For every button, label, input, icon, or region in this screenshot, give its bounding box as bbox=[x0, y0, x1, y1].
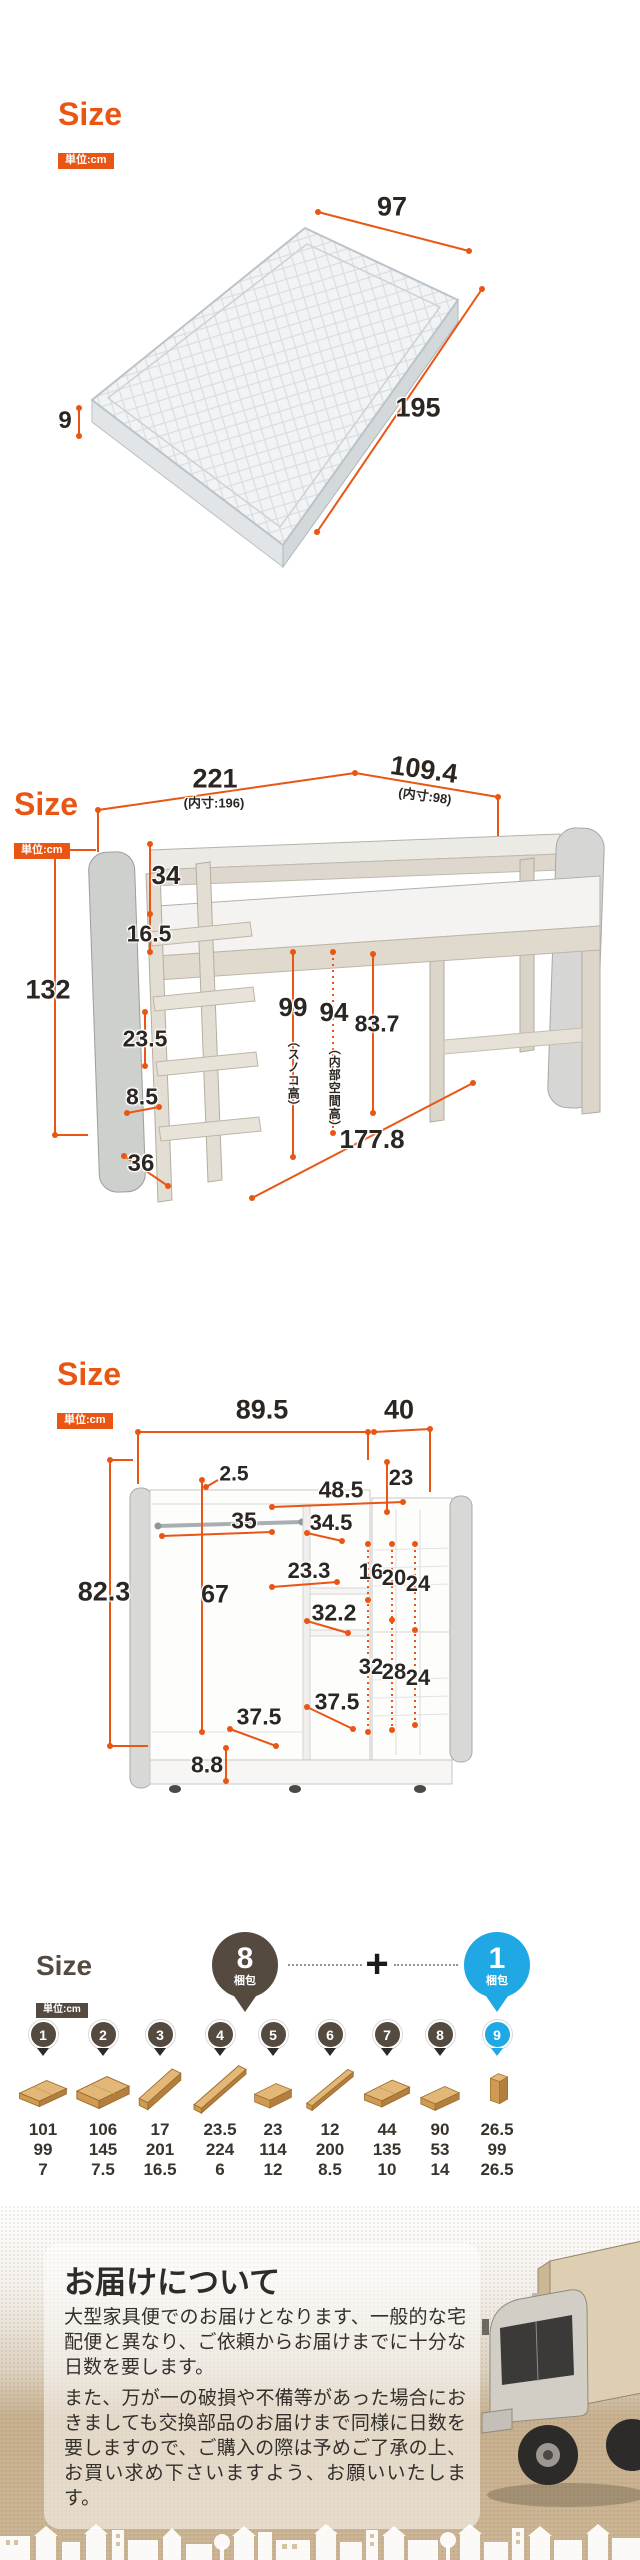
bed-width-dim: 221 bbox=[192, 766, 237, 793]
package-item-4: 4 23.52246 bbox=[191, 2020, 249, 2180]
package-item-1: 1 101997 bbox=[14, 2020, 72, 2180]
package-number-pin: 9 bbox=[483, 2020, 512, 2056]
package-item-5: 5 2311412 bbox=[244, 2020, 302, 2180]
wardrobe-slot-top1-dim: 16 bbox=[359, 1561, 383, 1583]
mattress-length-dim: 195 bbox=[395, 395, 440, 422]
wardrobe-upper-shelf-dim: 34.5 bbox=[310, 1512, 353, 1534]
package-number-pin: 8 bbox=[426, 2020, 455, 2056]
wardrobe-slot-bot3-dim: 24 bbox=[406, 1667, 430, 1689]
bed-inner-height-note: （内部空間高） bbox=[328, 1043, 341, 1134]
delivery-paragraph-2: また、万が一の破損や不備等があった場合におきましても交換部品のお届けまで同様に日… bbox=[64, 2386, 466, 2511]
delivery-body: 大型家具便でのお届けとなります、一般的な宅配便と異なり、ご依頼からお届けまでに十… bbox=[64, 2305, 466, 2517]
size-title: Size bbox=[36, 1952, 92, 1980]
package-item-3: 3 1720116.5 bbox=[131, 2020, 189, 2180]
mattress-thickness-dim: 9 bbox=[58, 409, 71, 433]
unit-badge: 単位:cm bbox=[58, 153, 114, 169]
size-title: Size bbox=[14, 788, 78, 820]
mattress-width-dim: 97 bbox=[377, 194, 407, 221]
wardrobe-side-width-dim: 40 bbox=[384, 1397, 414, 1424]
wardrobe-slot-top2-dim: 20 bbox=[382, 1567, 406, 1589]
bed-size-section: Size 単位:cm bbox=[0, 660, 640, 1240]
package-box-icon bbox=[358, 2060, 416, 2114]
bed-step-depth-dim: 8.5 bbox=[126, 1086, 158, 1109]
package-number-pin: 5 bbox=[259, 2020, 288, 2056]
bed-under-width-dim: 177.8 bbox=[339, 1126, 404, 1152]
package-item-2: 2 1061457.5 bbox=[74, 2020, 132, 2180]
bed-slat-height-note: （スノコ高） bbox=[287, 1035, 300, 1113]
wardrobe-left-inner-dim: 35 bbox=[231, 1510, 257, 1533]
package-item-7: 7 4413510 bbox=[358, 2020, 416, 2180]
package-item-6: 6 122008.5 bbox=[301, 2020, 359, 2180]
packing-section: Size 単位:cm 8 梱包 + 1 梱包 1 101997 bbox=[0, 1860, 640, 2205]
package-count-label: 梱包 bbox=[234, 1976, 256, 1987]
city-skyline-decoration bbox=[0, 2520, 640, 2560]
size-title: Size bbox=[58, 98, 122, 130]
mattress-size-header: Size 単位:cm bbox=[58, 98, 122, 169]
bed-slat-height-dim: 99 bbox=[279, 994, 308, 1020]
bed-size-header: Size 単位:cm bbox=[14, 788, 78, 859]
wardrobe-depth-right-dim: 37.5 bbox=[315, 1691, 360, 1714]
wardrobe-upper-inner-dim: 48.5 bbox=[319, 1479, 364, 1502]
wardrobe-slot-bot2-dim: 28 bbox=[382, 1661, 406, 1683]
package-box-icon bbox=[14, 2060, 72, 2114]
dotted-leader-left bbox=[288, 1964, 362, 1966]
package-item-8: 8 905314 bbox=[411, 2020, 469, 2180]
plus-sign: + bbox=[365, 1944, 388, 1984]
unit-badge: 単位:cm bbox=[57, 1413, 113, 1429]
bed-width-inner-dim: (内寸:196) bbox=[184, 797, 245, 810]
bed-step-pitch-dim: 23.5 bbox=[123, 1028, 168, 1051]
wardrobe-height-dim: 82.3 bbox=[78, 1579, 131, 1606]
package-count: 8 bbox=[237, 1944, 254, 1974]
mattress-size-section: Size 単位:cm bbox=[0, 0, 640, 660]
delivery-truck-illustration bbox=[472, 2233, 640, 2525]
wardrobe-rod-dim: 2.5 bbox=[219, 1464, 248, 1485]
bed-inner-height-dim: 94 bbox=[320, 999, 349, 1025]
badge-tail bbox=[486, 1996, 508, 2012]
bed-guard-dim: 34 bbox=[152, 862, 181, 888]
package-box-icon bbox=[131, 2060, 189, 2114]
packing-size-header: Size 単位:cm bbox=[36, 1952, 92, 2018]
product-size-page: Size 単位:cm bbox=[0, 0, 640, 2560]
bed-under-clearance-dim: 83.7 bbox=[355, 1013, 400, 1036]
wardrobe-size-section: Size 単位:cm bbox=[0, 1240, 640, 1860]
bed-height-dim: 132 bbox=[25, 977, 70, 1004]
package-number-pin: 2 bbox=[89, 2020, 118, 2056]
wardrobe-depth-left-dim: 37.5 bbox=[237, 1706, 282, 1729]
wardrobe-mid-shelf-dim: 23.3 bbox=[288, 1560, 331, 1582]
extra-package-badge: 1 梱包 bbox=[464, 1932, 530, 2012]
wardrobe-mid-inner-dim: 32.2 bbox=[312, 1602, 357, 1625]
wardrobe-left-height-dim: 67 bbox=[201, 1583, 229, 1608]
wardrobe-main-width-dim: 89.5 bbox=[236, 1397, 289, 1424]
loft-bed-illustration bbox=[0, 660, 640, 1240]
wardrobe-illustration bbox=[0, 1240, 640, 1860]
package-item-9: 9 26.59926.5 bbox=[468, 2020, 526, 2180]
package-box-icon bbox=[301, 2060, 359, 2114]
delivery-paragraph-1: 大型家具便でのお届けとなります、一般的な宅配便と異なり、ご依頼からお届けまでに十… bbox=[64, 2305, 466, 2380]
package-box-icon bbox=[244, 2060, 302, 2114]
package-number-pin: 6 bbox=[316, 2020, 345, 2056]
wardrobe-slot-bot1-dim: 32 bbox=[359, 1656, 383, 1678]
delivery-title: お届けについて bbox=[64, 2257, 280, 2302]
unit-badge: 単位:cm bbox=[14, 843, 70, 859]
package-box-icon bbox=[74, 2060, 132, 2114]
wardrobe-base-height-dim: 8.8 bbox=[191, 1754, 223, 1777]
total-packages-badge: 8 梱包 bbox=[212, 1932, 278, 2012]
wardrobe-side-top-dim: 23 bbox=[389, 1467, 413, 1489]
dotted-leader-right bbox=[394, 1964, 458, 1966]
bed-guard-gap-dim: 16.5 bbox=[127, 923, 172, 946]
package-number-pin: 1 bbox=[29, 2020, 58, 2056]
package-number-pin: 4 bbox=[206, 2020, 235, 2056]
package-box-icon bbox=[191, 2060, 249, 2114]
size-title: Size bbox=[57, 1358, 121, 1390]
bed-ladder-width-dim: 36 bbox=[128, 1152, 155, 1176]
unit-badge: 単位:cm bbox=[36, 2003, 88, 2018]
badge-tail bbox=[234, 1996, 256, 2012]
package-box-icon bbox=[468, 2060, 526, 2114]
package-number-pin: 7 bbox=[373, 2020, 402, 2056]
delivery-section: お届けについて 大型家具便でのお届けとなります、一般的な宅配便と異なり、ご依頼か… bbox=[0, 2205, 640, 2560]
package-count: 1 bbox=[489, 1944, 506, 1974]
package-number-pin: 3 bbox=[146, 2020, 175, 2056]
wardrobe-slot-top3-dim: 24 bbox=[406, 1573, 430, 1595]
package-count-label: 梱包 bbox=[486, 1976, 508, 1987]
package-box-icon bbox=[411, 2060, 469, 2114]
wardrobe-size-header: Size 単位:cm bbox=[57, 1358, 121, 1429]
